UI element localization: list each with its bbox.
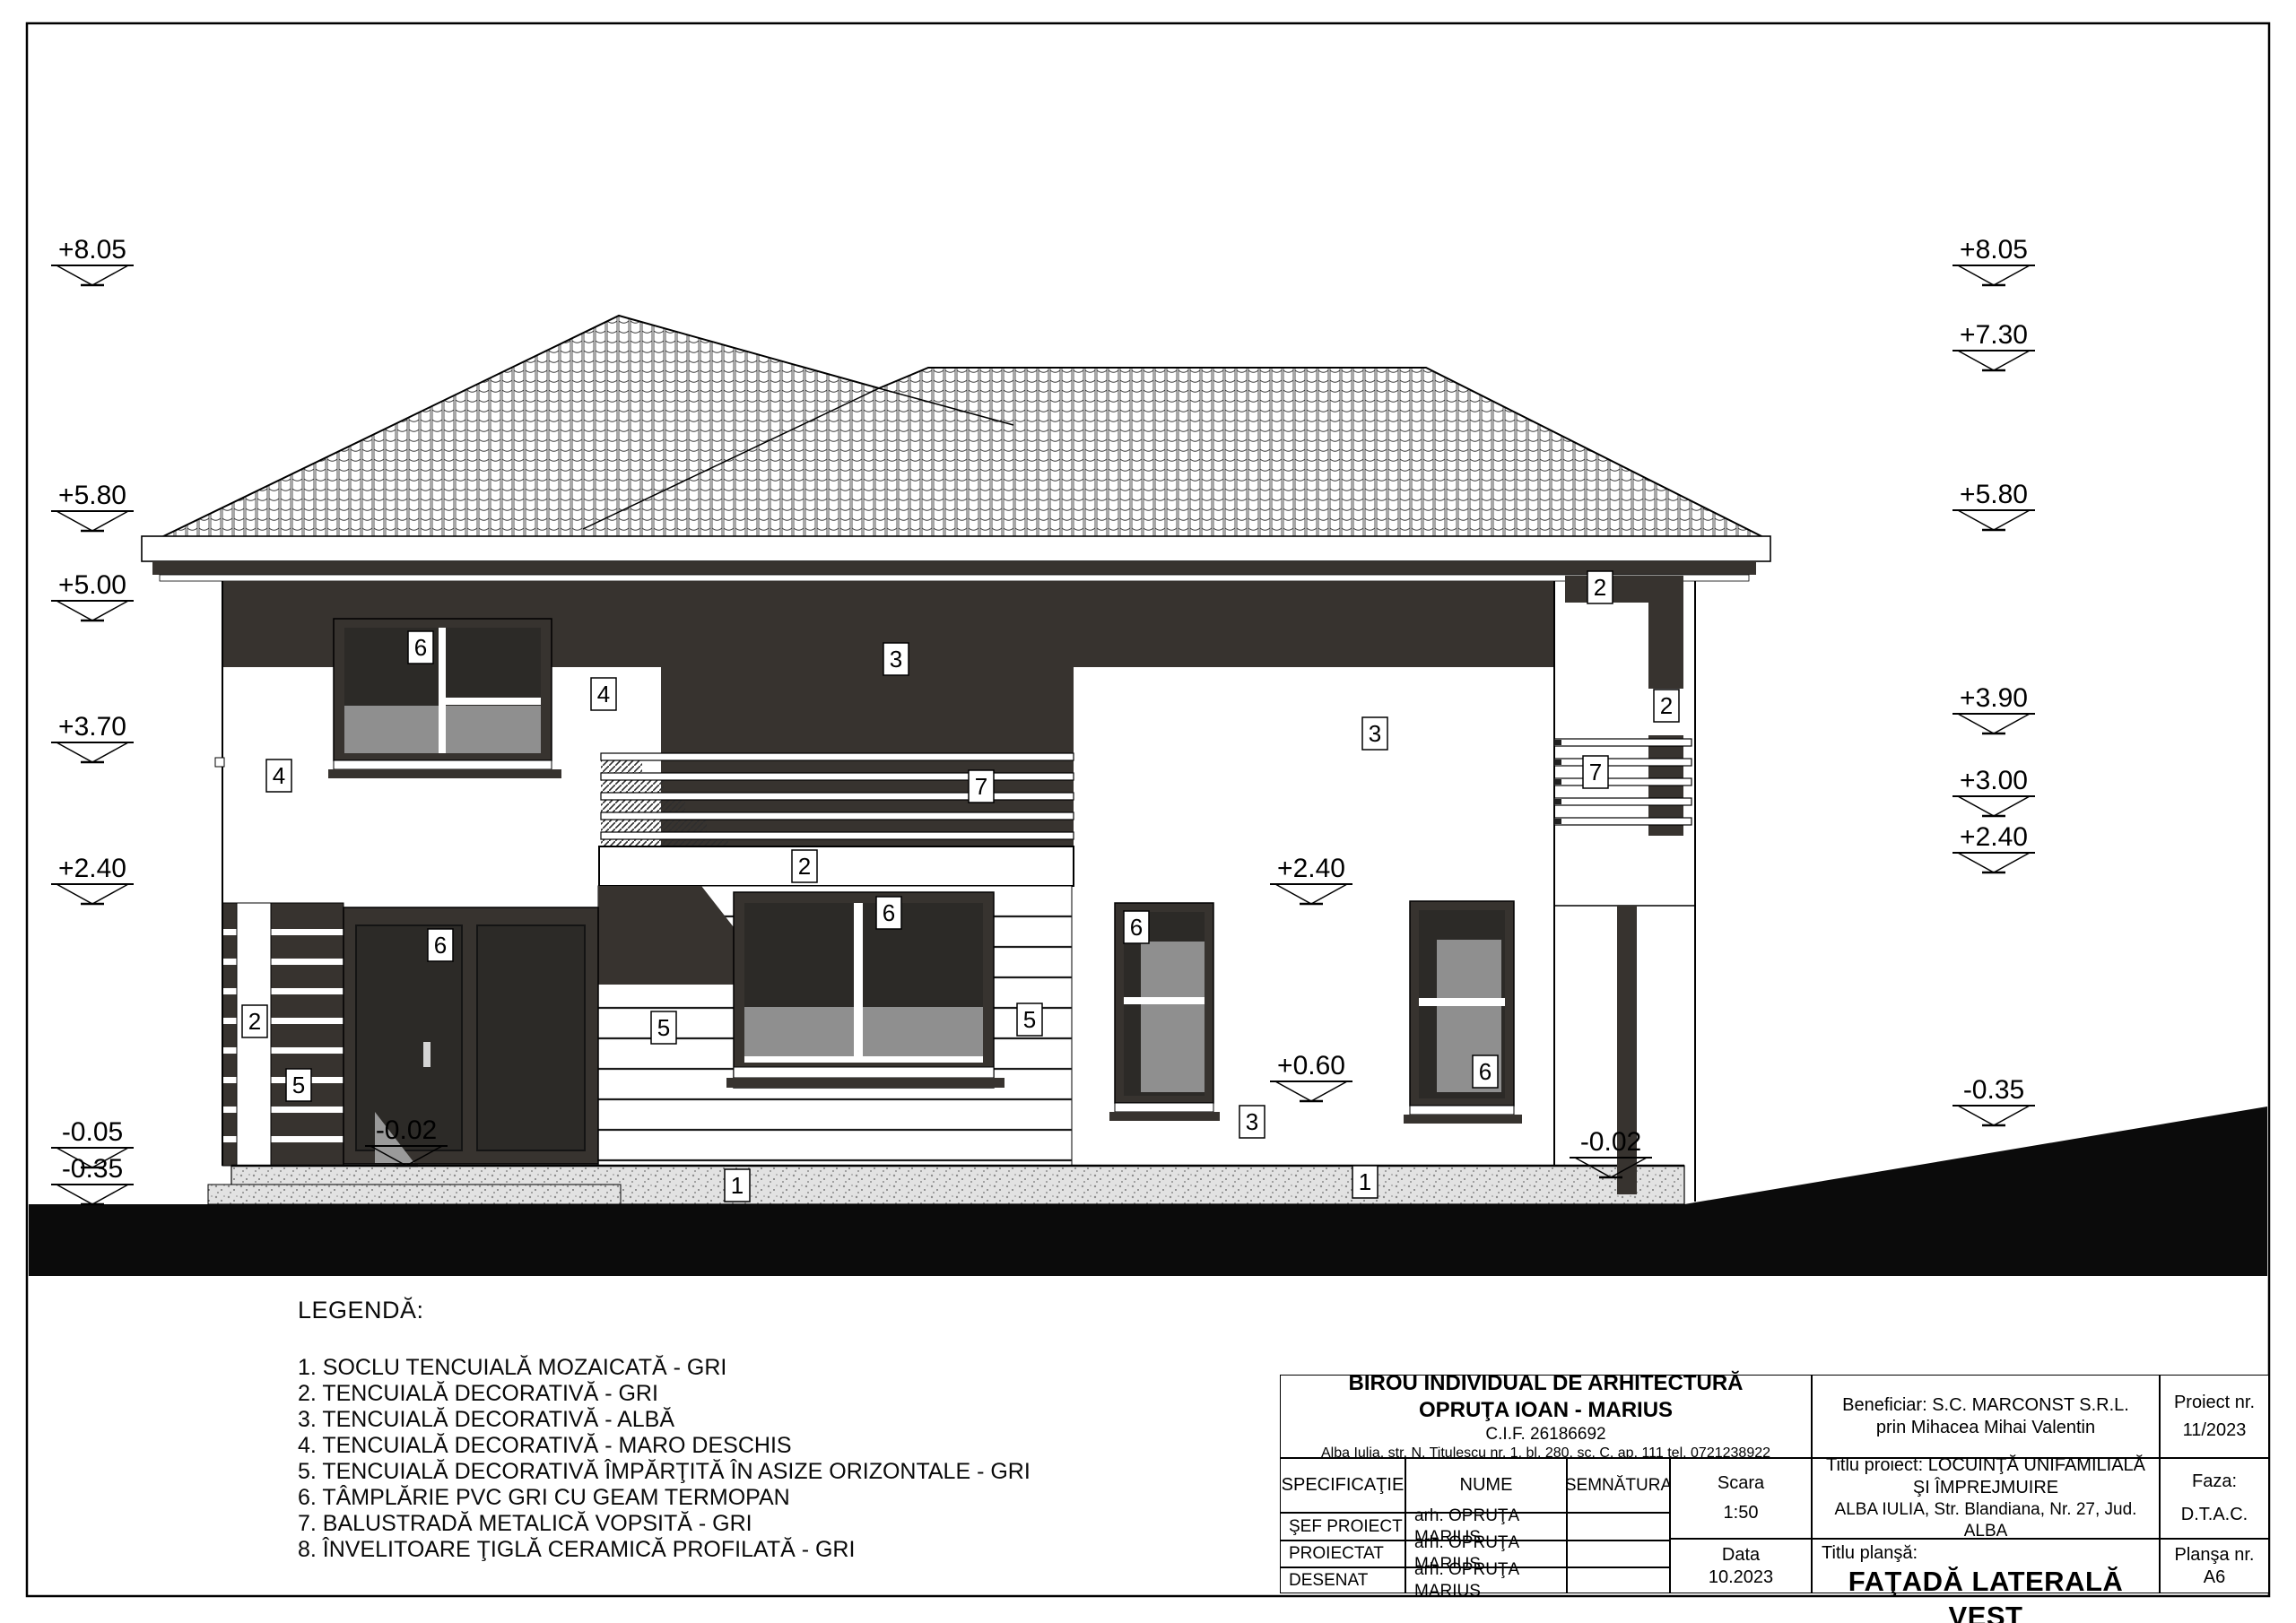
sheet-title: FAŢADĂ LATERALĂ VEST — [1813, 1565, 2159, 1623]
sheet-no-label: Planşa nr. — [2175, 1544, 2255, 1567]
scale-label: Scara — [1718, 1472, 1764, 1495]
phase-cell: Faza: D.T.A.C. — [2160, 1458, 2269, 1539]
rail — [601, 832, 1074, 839]
elevation-marker-left: +5.00 — [51, 570, 134, 621]
date-value: 10.2023 — [1709, 1567, 1773, 1589]
material-callout: 4 — [266, 759, 291, 792]
window-sill — [1404, 1115, 1522, 1124]
roof-soffit-strip — [160, 575, 1749, 581]
elevation-marker-interior: +2.40 — [1270, 854, 1352, 904]
row-role: DESENAT — [1280, 1567, 1405, 1593]
project-title-cell: Titlu proiect: LOCUINŢĂ UNIFAMILIALĂ ŞI … — [1812, 1458, 2160, 1539]
signature-header: SEMNĂTURA — [1567, 1458, 1670, 1513]
elevation-marker-right: +2.40 — [1952, 822, 2035, 872]
glass — [1141, 1004, 1205, 1092]
row-signature — [1567, 1567, 1670, 1593]
callout-number: 5 — [292, 1072, 305, 1098]
firm-cif: C.I.F. 26186692 — [1485, 1424, 1605, 1445]
callout-number: 5 — [1023, 1006, 1036, 1033]
sheet-title-label: Titlu planşă: — [1813, 1542, 1918, 1565]
legend-item: 6. TÂMPLĂRIE PVC GRI CU GEAM TERMOPAN — [298, 1485, 1177, 1511]
elevation-value: +3.90 — [1960, 683, 2028, 713]
callout-number: 6 — [1130, 914, 1143, 941]
elevation-value: +2.40 — [1960, 822, 2028, 852]
material-callout: 2 — [1587, 571, 1613, 603]
rail — [601, 773, 1074, 780]
elevation-marker-interior: +0.60 — [1270, 1051, 1352, 1101]
callout-number: 6 — [414, 634, 427, 661]
sheet-title-cell: Titlu planşă: FAŢADĂ LATERALĂ VEST — [1812, 1539, 2160, 1593]
window-sill — [328, 769, 561, 778]
beneficiary-line2: prin Mihacea Mihai Valentin — [1876, 1417, 2095, 1439]
legend-item: 2. TENCUIALĂ DECORATIVĂ - GRI — [298, 1381, 1177, 1407]
elevation-value: +2.40 — [58, 854, 126, 883]
elevation-value: +5.80 — [1960, 480, 2028, 509]
callout-number: 1 — [1359, 1168, 1371, 1195]
glass — [446, 706, 541, 753]
material-callout: 6 — [876, 897, 901, 929]
legend-item: 3. TENCUIALĂ DECORATIVĂ - ALBĂ — [298, 1407, 1177, 1433]
stair-tower — [1554, 576, 1695, 1202]
window-sill — [726, 1078, 1004, 1088]
elevation-value: -0.02 — [376, 1115, 437, 1145]
material-callout: 6 — [1124, 911, 1149, 943]
elevation-marker-left: +3.70 — [51, 712, 134, 762]
elevation-marker-right: +7.30 — [1952, 320, 2035, 370]
callout-number: 6 — [1479, 1058, 1492, 1085]
date-cell: Data 10.2023 — [1670, 1539, 1812, 1593]
elevation-marker-right: +5.80 — [1952, 480, 2035, 530]
callout-number: 4 — [273, 762, 285, 789]
material-callout: 4 — [591, 678, 616, 710]
material-callout: 3 — [1239, 1106, 1265, 1138]
elevation-value: +5.80 — [58, 481, 126, 510]
elevation-value: -0.35 — [62, 1154, 123, 1184]
door-handle — [423, 1042, 430, 1067]
balcony-slab — [599, 846, 1074, 886]
row-signature — [1567, 1541, 1670, 1567]
callout-number: 7 — [975, 773, 987, 800]
firm-cell: BIROU INDIVIDUAL DE ARHITECTURĂ OPRUŢA I… — [1280, 1375, 1812, 1458]
elevation-value: -0.02 — [1580, 1127, 1641, 1157]
rail — [601, 753, 1074, 760]
entrance-step — [208, 1185, 621, 1204]
scale-value: 1:50 — [1724, 1502, 1759, 1524]
rail-shadow — [601, 820, 707, 832]
elevation-marker-left: -0.35 — [51, 1154, 134, 1204]
callout-number: 2 — [1660, 692, 1673, 719]
callout-number: 1 — [731, 1172, 744, 1199]
project-title-line1: Titlu proiect: LOCUINŢĂ UNIFAMILIALĂ — [1826, 1454, 2145, 1477]
elevation-value: +8.05 — [58, 235, 126, 265]
legend-item: 7. BALUSTRADĂ METALICĂ VOPSITĂ - GRI — [298, 1511, 1177, 1537]
beneficiary-line1: Beneficiar: S.C. MARCONST S.R.L. — [1842, 1394, 2129, 1417]
window-upper-left — [328, 619, 561, 778]
callout-number: 4 — [597, 681, 610, 707]
project-no-value: 11/2023 — [2183, 1419, 2247, 1442]
elevation-value: +3.00 — [1960, 766, 2028, 795]
door-leaf — [477, 925, 585, 1150]
legend-item: 8. ÎNVELITOARE ŢIGLĂ CERAMICĂ PROFILATĂ … — [298, 1537, 1177, 1563]
sheet-no-cell: Planşa nr. A6 — [2160, 1539, 2269, 1593]
material-callout: 3 — [1362, 717, 1387, 750]
elevation-marker-left: +8.05 — [51, 235, 134, 285]
material-callout: 6 — [428, 929, 453, 961]
material-callout: 3 — [883, 643, 909, 675]
callout-number: 3 — [890, 646, 902, 673]
roof-fascia-dark-band — [152, 561, 1756, 575]
row-role: PROIECTAT — [1280, 1541, 1405, 1567]
elevation-marker-right: +3.90 — [1952, 683, 2035, 733]
elevation-value: +2.40 — [1277, 854, 1345, 883]
material-callout: 7 — [1583, 756, 1608, 788]
scale-cell: Scara 1:50 — [1670, 1458, 1812, 1539]
glass — [744, 1007, 854, 1059]
elevation-marker-left: +5.80 — [51, 481, 134, 531]
drawing-sheet: 112222333445556666677 +8.05+5.80+5.00+3.… — [0, 0, 2296, 1623]
spec-header: SPECIFICAŢIE — [1280, 1458, 1405, 1513]
legend-item: 1. SOCLU TENCUIALĂ MOZAICATĂ - GRI — [298, 1355, 1177, 1381]
glass — [1141, 942, 1205, 997]
elevation-value: -0.35 — [1963, 1075, 2024, 1105]
phase-value: D.T.A.C. — [2181, 1504, 2248, 1526]
legend-item: 4. TENCUIALĂ DECORATIVĂ - MARO DESCHIS — [298, 1433, 1177, 1459]
rail — [601, 793, 1074, 800]
callout-number: 3 — [1369, 720, 1381, 747]
project-title-line2: ŞI ÎMPREJMUIRE — [1913, 1477, 2058, 1499]
elevation-marker-right: +8.05 — [1952, 235, 2035, 285]
rail — [601, 812, 1074, 820]
callout-number: 6 — [434, 932, 447, 959]
wall-tick — [215, 758, 224, 767]
elevation-value: +3.70 — [58, 712, 126, 742]
callout-number: 7 — [1589, 759, 1602, 785]
material-callout: 5 — [651, 1011, 676, 1044]
beneficiary-cell: Beneficiar: S.C. MARCONST S.R.L. prin Mi… — [1812, 1375, 2160, 1458]
material-callout: 1 — [725, 1169, 750, 1202]
elevation-marker-left: +2.40 — [51, 854, 134, 904]
rail-shadow — [601, 780, 664, 793]
elevation-marker-right: -0.35 — [1952, 1075, 2035, 1125]
rail-shadow — [601, 760, 642, 773]
material-callout: 2 — [1654, 690, 1679, 722]
elevation-value: +0.60 — [1277, 1051, 1345, 1081]
callout-number: 2 — [798, 853, 811, 880]
elevation-marker-right: +3.00 — [1952, 766, 2035, 816]
glass — [344, 706, 439, 753]
project-no-cell: Proiect nr. 11/2023 — [2160, 1375, 2269, 1458]
material-callout: 2 — [792, 850, 817, 882]
material-callout: 7 — [969, 770, 994, 803]
sheet-no-value: A6 — [2204, 1567, 2225, 1589]
date-label: Data — [1722, 1544, 1760, 1567]
row-role: ŞEF PROIECT — [1280, 1513, 1405, 1541]
material-callout: 6 — [1473, 1055, 1498, 1088]
siding-left — [222, 903, 344, 1166]
firm-architect: OPRUŢA IOAN - MARIUS — [1419, 1397, 1673, 1424]
phase-label: Faza: — [2192, 1471, 2237, 1493]
glass — [863, 1007, 983, 1059]
elevation-value: -0.05 — [62, 1117, 123, 1147]
elevation-value: +8.05 — [1960, 235, 2028, 265]
callout-number: 3 — [1246, 1108, 1258, 1135]
elevation-value: +7.30 — [1960, 320, 2028, 350]
project-no-label: Proiect nr. — [2174, 1392, 2255, 1414]
row-name: arh. OPRUŢA MARIUS — [1405, 1567, 1567, 1593]
material-callout: 5 — [286, 1069, 311, 1101]
glass — [1437, 940, 1501, 998]
window-mid — [726, 892, 1004, 1088]
row-signature — [1567, 1513, 1670, 1541]
callout-number: 2 — [248, 1008, 261, 1035]
material-callout: 5 — [1017, 1003, 1042, 1036]
legend: LEGENDĂ: 1. SOCLU TENCUIALĂ MOZAICATĂ - … — [298, 1297, 1177, 1563]
callout-number: 2 — [1594, 574, 1606, 601]
firm-name: BIROU INDIVIDUAL DE ARHITECTURĂ — [1348, 1370, 1743, 1397]
material-callout: 1 — [1352, 1166, 1378, 1198]
window-right-b — [1404, 901, 1522, 1124]
window-sill — [1109, 1112, 1220, 1121]
legend-title: LEGENDĂ: — [298, 1297, 1177, 1324]
callout-number: 6 — [883, 899, 895, 926]
roof-fascia — [142, 536, 1770, 561]
material-callout: 6 — [408, 631, 433, 664]
elevation-value: +5.00 — [58, 570, 126, 600]
roof — [142, 316, 1770, 581]
material-callout: 2 — [242, 1005, 267, 1037]
project-address: ALBA IULIA, Str. Blandiana, Nr. 27, Jud.… — [1813, 1499, 2159, 1542]
callout-number: 5 — [657, 1014, 670, 1041]
rail-shadow — [601, 800, 685, 812]
roof-tile-field — [156, 316, 1769, 540]
legend-item: 5. TENCUIALĂ DECORATIVĂ ÎMPĂRŢITĂ ÎN ASI… — [298, 1459, 1177, 1485]
